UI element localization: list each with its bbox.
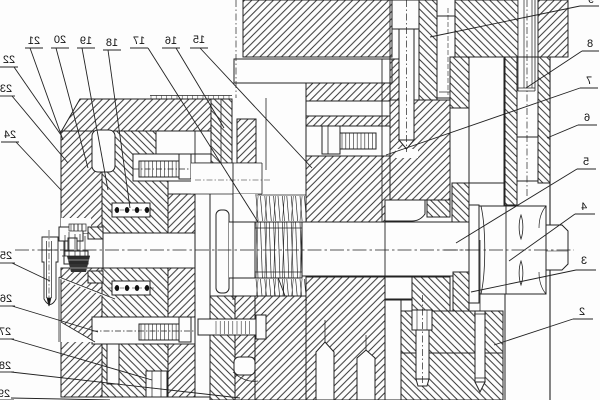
svg-text:17: 17: [133, 35, 145, 47]
svg-text:7: 7: [586, 75, 592, 87]
svg-text:8: 8: [587, 38, 593, 50]
svg-text:19: 19: [80, 35, 92, 47]
svg-text:28: 28: [0, 360, 11, 372]
svg-text:2: 2: [579, 306, 585, 318]
svg-text:22: 22: [3, 54, 15, 66]
svg-text:6: 6: [584, 112, 590, 124]
svg-text:9: 9: [588, 0, 594, 6]
svg-text:3: 3: [581, 255, 587, 267]
svg-text:16: 16: [165, 35, 177, 47]
svg-text:4: 4: [581, 201, 587, 213]
svg-text:20: 20: [54, 34, 66, 46]
svg-text:25: 25: [0, 250, 12, 262]
svg-text:15: 15: [193, 34, 205, 46]
svg-text:29: 29: [0, 388, 10, 400]
svg-text:5: 5: [583, 156, 589, 168]
svg-text:21: 21: [28, 35, 40, 47]
svg-text:23: 23: [0, 83, 12, 95]
svg-text:24: 24: [4, 129, 16, 141]
svg-text:26: 26: [0, 293, 12, 305]
svg-text:18: 18: [106, 37, 118, 49]
svg-text:27: 27: [0, 326, 11, 338]
